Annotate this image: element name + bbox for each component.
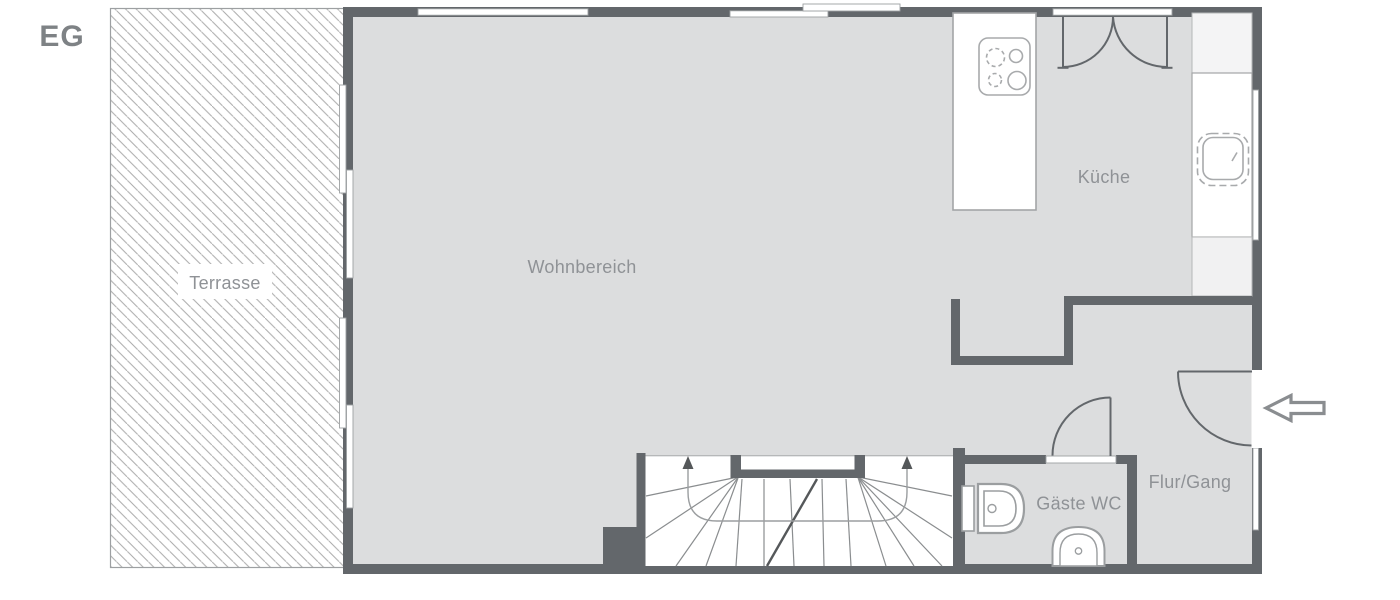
window-icon — [730, 11, 828, 17]
floorplan-eg: EG Terrasse — [0, 0, 1400, 600]
stairs-landing-wall — [732, 470, 865, 479]
entrance-arrow-icon — [1266, 396, 1324, 421]
kitchen-tall-cabinet — [1192, 13, 1252, 73]
window-icon — [1253, 90, 1259, 240]
stairs-icon — [646, 455, 954, 566]
room-label-terrasse: Terrasse — [189, 273, 260, 293]
wall-pier — [603, 527, 645, 569]
kitchen-lower-cabinet — [1192, 237, 1252, 296]
terrace-area: Terrasse — [111, 9, 346, 568]
room-label-kueche: Küche — [1078, 167, 1131, 187]
window-icon — [1253, 448, 1259, 530]
stairs-landing-cap — [855, 455, 866, 478]
stairs-landing-cap — [731, 455, 742, 478]
toilet-icon — [962, 484, 1024, 533]
entrance-door-opening — [1252, 370, 1263, 448]
window-icon — [347, 170, 354, 278]
kitchen-island — [953, 13, 1036, 210]
window-icon — [340, 318, 347, 428]
washbasin-icon — [1053, 527, 1105, 566]
room-label-flur-gang: Flur/Gang — [1149, 472, 1232, 492]
window-icon — [340, 85, 347, 193]
window-icon — [347, 405, 354, 508]
window-icon — [803, 4, 900, 11]
floor-level-label: EG — [39, 20, 84, 53]
room-label-wohnbereich: Wohnbereich — [527, 257, 636, 277]
window-icon — [418, 9, 588, 15]
room-label-gaeste-wc: Gäste WC — [1036, 494, 1121, 514]
